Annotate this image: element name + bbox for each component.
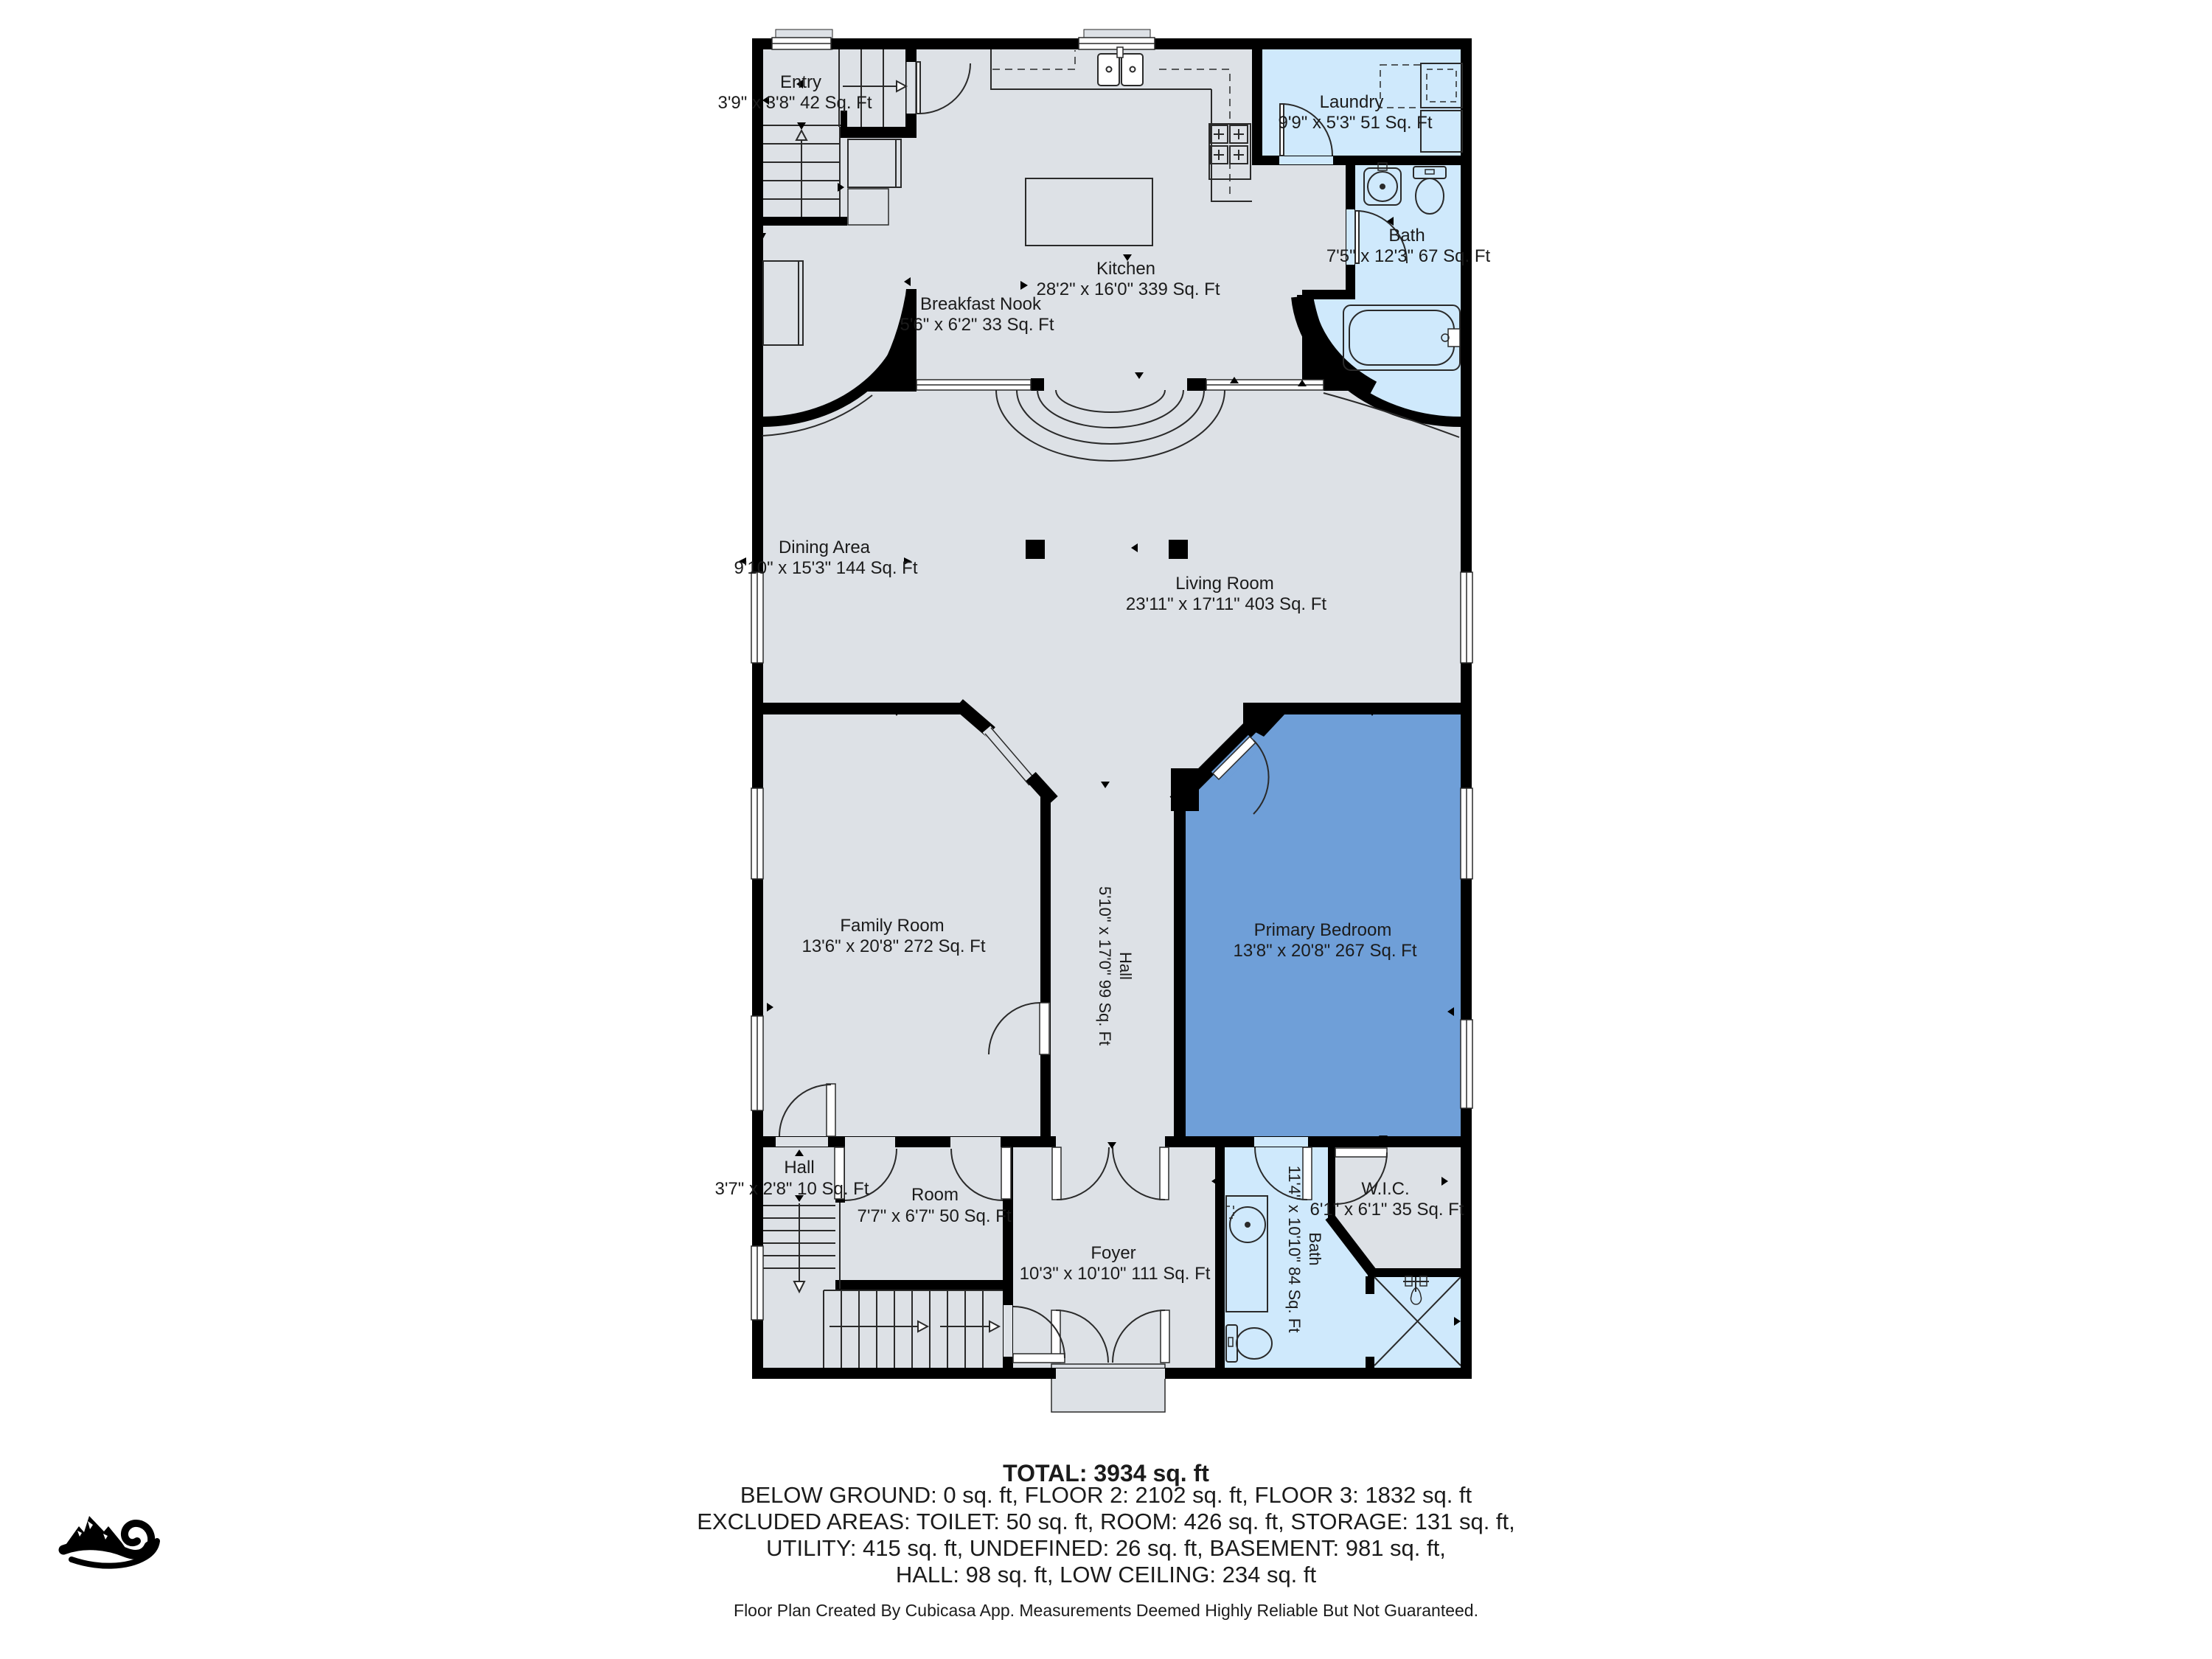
svg-text:Kitchen: Kitchen — [1096, 259, 1155, 279]
svg-text:9'10" x 15'3" 144 Sq. Ft: 9'10" x 15'3" 144 Sq. Ft — [734, 558, 917, 578]
svg-text:7'7" x 6'7" 50 Sq. Ft: 7'7" x 6'7" 50 Sq. Ft — [858, 1206, 1012, 1226]
svg-text:Family Room: Family Room — [840, 916, 944, 936]
svg-text:W.I.C.: W.I.C. — [1361, 1179, 1409, 1199]
svg-text:Living Room: Living Room — [1175, 574, 1273, 594]
svg-text:Dining Area: Dining Area — [779, 538, 871, 557]
svg-text:Floor Plan Created By Cubicasa: Floor Plan Created By Cubicasa App. Meas… — [734, 1601, 1478, 1620]
svg-text:Breakfast Nook: Breakfast Nook — [920, 294, 1042, 314]
svg-text:Primary Bedroom: Primary Bedroom — [1254, 920, 1392, 940]
svg-text:EXCLUDED AREAS: TOILET: 50 sq.: EXCLUDED AREAS: TOILET: 50 sq. ft, ROOM:… — [697, 1509, 1515, 1534]
svg-text:3'7" x 2'8" 10 Sq. Ft: 3'7" x 2'8" 10 Sq. Ft — [715, 1179, 869, 1199]
svg-text:13'6" x 20'8" 272 Sq. Ft: 13'6" x 20'8" 272 Sq. Ft — [801, 936, 985, 956]
svg-text:HALL: 98 sq. ft, LOW CEILING:: HALL: 98 sq. ft, LOW CEILING: 234 sq. ft — [896, 1562, 1317, 1587]
svg-text:23'11" x 17'11" 403 Sq. Ft: 23'11" x 17'11" 403 Sq. Ft — [1126, 594, 1326, 614]
svg-text:Foyer: Foyer — [1091, 1243, 1135, 1263]
svg-text:Room: Room — [911, 1185, 959, 1205]
svg-text:Hall: Hall — [784, 1158, 814, 1178]
svg-text:9'9" x 5'3" 51 Sq. Ft: 9'9" x 5'3" 51 Sq. Ft — [1279, 113, 1433, 133]
svg-text:3'9" x 3'8" 42 Sq. Ft: 3'9" x 3'8" 42 Sq. Ft — [718, 93, 872, 113]
svg-text:28'2" x 16'0" 339 Sq. Ft: 28'2" x 16'0" 339 Sq. Ft — [1036, 279, 1220, 299]
svg-text:Entry: Entry — [780, 72, 821, 92]
svg-text:BELOW GROUND: 0 sq. ft, FLOOR: BELOW GROUND: 0 sq. ft, FLOOR 2: 2102 sq… — [740, 1482, 1472, 1508]
svg-text:7'5" x 12'3" 67 Sq. Ft: 7'5" x 12'3" 67 Sq. Ft — [1326, 246, 1491, 266]
svg-text:5'6" x 6'2" 33 Sq. Ft: 5'6" x 6'2" 33 Sq. Ft — [900, 315, 1054, 335]
svg-text:Laundry: Laundry — [1320, 92, 1384, 112]
svg-text:10'3" x 10'10" 111 Sq. Ft: 10'3" x 10'10" 111 Sq. Ft — [1020, 1264, 1211, 1284]
svg-text:UTILITY: 415 sq. ft, UNDEFINED: UTILITY: 415 sq. ft, UNDEFINED: 26 sq. f… — [766, 1535, 1446, 1561]
svg-text:6'1" x 6'1" 35 Sq. Ft: 6'1" x 6'1" 35 Sq. Ft — [1310, 1200, 1464, 1220]
svg-text:13'8" x 20'8" 267 Sq. Ft: 13'8" x 20'8" 267 Sq. Ft — [1233, 941, 1416, 961]
svg-text:Bath: Bath — [1388, 226, 1425, 246]
